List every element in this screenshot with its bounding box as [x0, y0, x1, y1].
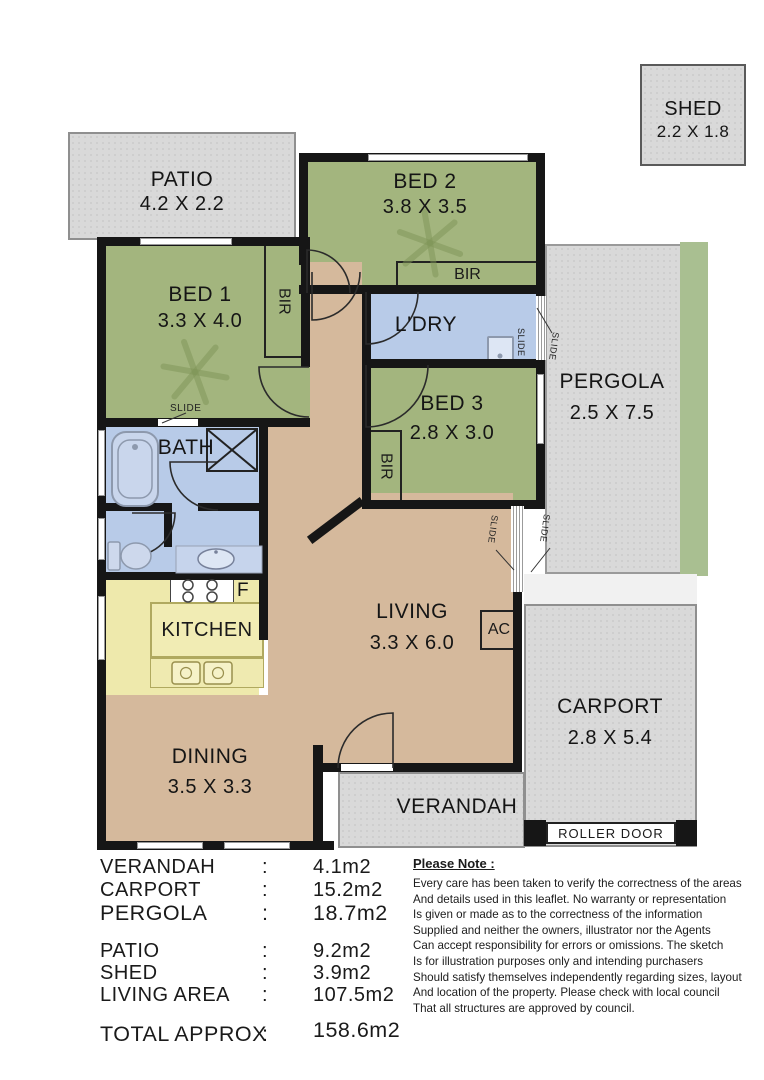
carport-label: CARPORT — [557, 695, 663, 719]
bed1-robe: BIR — [264, 246, 301, 358]
summary-row: SHED : 3.9m2 — [100, 962, 410, 985]
summary-label: LIVING AREA — [100, 984, 230, 1006]
summary-row: LIVING AREA : 107.5m2 — [100, 984, 410, 1007]
bed3-dims: 2.8 X 3.0 — [410, 422, 495, 445]
disclaimer-line: Every care has been taken to verify the … — [413, 876, 764, 892]
carport-entry-gap — [524, 574, 697, 604]
window — [98, 430, 105, 496]
wall — [362, 359, 545, 368]
carport-area — [524, 604, 697, 847]
summary-value: 4.1m2 — [313, 856, 371, 879]
wall — [97, 572, 268, 580]
laundry-sliding-door — [536, 296, 546, 360]
roller-door-post-right — [676, 820, 697, 846]
dining-dims: 3.5 X 3.3 — [168, 776, 253, 799]
bed1-sliding-door — [158, 419, 198, 426]
window — [537, 374, 544, 444]
summary-row: CARPORT : 15.2m2 — [100, 879, 410, 902]
window — [98, 596, 105, 660]
dining-label: DINING — [172, 745, 249, 769]
summary-label: VERANDAH — [100, 856, 215, 878]
disclaimer-line: Is given or made as to the correctness o… — [413, 907, 764, 923]
disclaimer-line: Should satisfy themselves independently … — [413, 970, 764, 986]
fridge-label: F — [237, 580, 249, 602]
wall — [513, 590, 522, 772]
disclaimer-line: Can accept responsibility for errors or … — [413, 938, 764, 954]
bed2-label: BED 2 — [393, 170, 456, 194]
roller-door-post-left — [524, 820, 546, 846]
sink-bench — [150, 658, 264, 688]
slide-label: SLIDE — [170, 403, 201, 414]
summary-value: 9.2m2 — [313, 940, 371, 963]
bed3-robe: BIR — [371, 430, 402, 500]
bed2-dims: 3.8 X 3.5 — [383, 196, 468, 219]
summary-label: PATIO — [100, 940, 160, 962]
wall — [164, 503, 172, 547]
summary-value: 3.9m2 — [313, 962, 371, 985]
summary-row: VERANDAH : 4.1m2 — [100, 856, 410, 879]
pergola-garden-strip — [680, 242, 708, 576]
bed1-dims: 3.3 X 4.0 — [158, 310, 243, 333]
patio-dims: 4.2 X 2.2 — [140, 193, 225, 216]
ac-label: AC — [488, 621, 510, 639]
summary-label: SHED — [100, 962, 158, 984]
summary-value: 15.2m2 — [313, 879, 383, 902]
wall — [301, 237, 310, 367]
summary-sep: : — [262, 940, 268, 963]
wall — [104, 503, 166, 511]
laundry-label: L'DRY — [395, 313, 457, 337]
pergola-dims: 2.5 X 7.5 — [570, 402, 655, 425]
patio-label: PATIO — [151, 168, 213, 192]
pergola-label: PERGOLA — [559, 370, 664, 394]
summary-sep: : — [262, 984, 268, 1007]
summary-total-value: 158.6m2 — [313, 1018, 400, 1043]
disclaimer-line: Is for illustration purposes only and in… — [413, 954, 764, 970]
verandah-door-opening — [341, 764, 393, 771]
roller-door-box: ROLLER DOOR — [546, 822, 676, 844]
shed-dims: 2.2 X 1.8 — [657, 122, 730, 142]
bed3-label: BED 3 — [420, 392, 483, 416]
disclaimer-line: And location of the property. Please che… — [413, 985, 764, 1001]
disclaimer-title: Please Note : — [413, 856, 764, 871]
window — [368, 154, 528, 161]
disclaimer-line: Supplied and neither the owners, illustr… — [413, 923, 764, 939]
roller-door-label: ROLLER DOOR — [558, 826, 664, 841]
wall — [97, 418, 310, 427]
summary-sep: : — [262, 962, 268, 985]
window — [224, 842, 290, 849]
summary-label: PERGOLA — [100, 901, 207, 925]
window — [137, 842, 203, 849]
bed2-robe-label: BIR — [454, 266, 481, 284]
summary-row: PERGOLA : 18.7m2 — [100, 901, 410, 926]
kitchen-island-bench: KITCHEN — [150, 602, 264, 658]
disclaimer-line: And details used in this leaflet. No war… — [413, 892, 764, 908]
bath-label: BATH — [158, 436, 214, 460]
disclaimer-line: That all structures are approved by coun… — [413, 1001, 764, 1017]
summary-total-row: TOTAL APPROX : 158.6m2 — [100, 1022, 410, 1047]
summary-value: 107.5m2 — [313, 984, 394, 1007]
summary-row: PATIO : 9.2m2 — [100, 940, 410, 963]
window — [140, 238, 232, 245]
bed2-robe: BIR — [396, 261, 537, 287]
bed1-robe-label: BIR — [275, 288, 293, 315]
living-sliding-door — [511, 506, 524, 592]
slide-label: SLIDE — [516, 328, 526, 357]
shed-label: SHED — [664, 98, 722, 121]
summary-total-label: TOTAL APPROX — [100, 1022, 267, 1046]
wall — [299, 285, 545, 294]
living-label: LIVING — [376, 600, 448, 624]
wall — [362, 285, 371, 509]
floor-plan: ROLLER DOOR BIR BIR BIR KITCHEN AC — [0, 0, 764, 1080]
summary-total-sep: : — [262, 1022, 268, 1047]
wall — [198, 503, 268, 511]
summary-value: 18.7m2 — [313, 901, 388, 926]
wall — [313, 745, 323, 850]
bed3-robe-label: BIR — [377, 453, 395, 480]
wall — [259, 418, 268, 580]
disclaimer-note: Please Note : Every care has been taken … — [413, 856, 764, 1016]
summary-label: CARPORT — [100, 879, 201, 901]
verandah-label: VERANDAH — [397, 795, 518, 819]
wall — [259, 578, 268, 640]
wall — [97, 841, 334, 850]
summary-sep: : — [262, 901, 268, 926]
carport-dims: 2.8 X 5.4 — [568, 727, 653, 750]
summary-sep: : — [262, 856, 268, 879]
stove-bench — [170, 577, 234, 603]
living-dims: 3.3 X 6.0 — [370, 632, 455, 655]
window — [98, 518, 105, 560]
kitchen-label: KITCHEN — [161, 619, 252, 642]
summary-sep: : — [262, 879, 268, 902]
bed1-label: BED 1 — [168, 283, 231, 307]
